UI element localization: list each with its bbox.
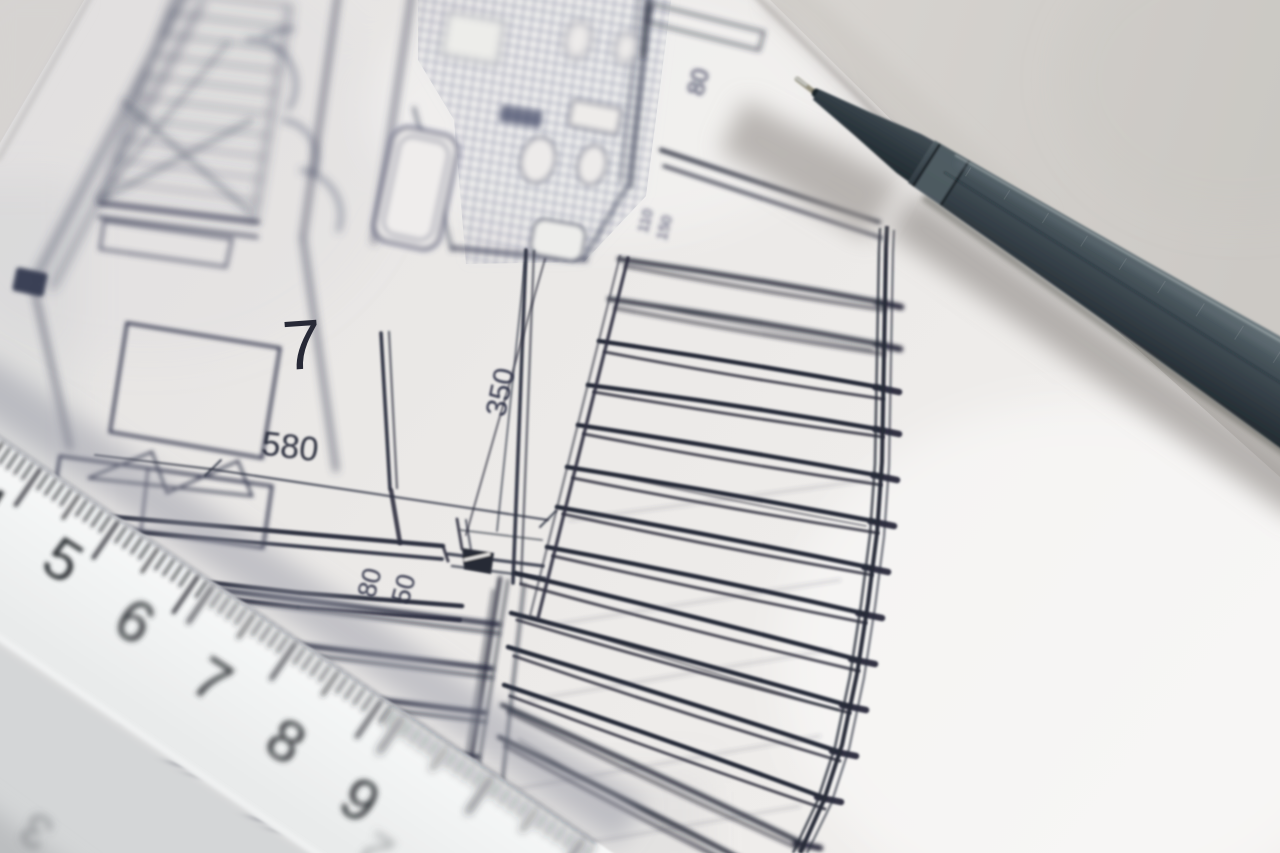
svg-text:580: 580 — [260, 425, 321, 470]
svg-text:7: 7 — [280, 305, 324, 386]
